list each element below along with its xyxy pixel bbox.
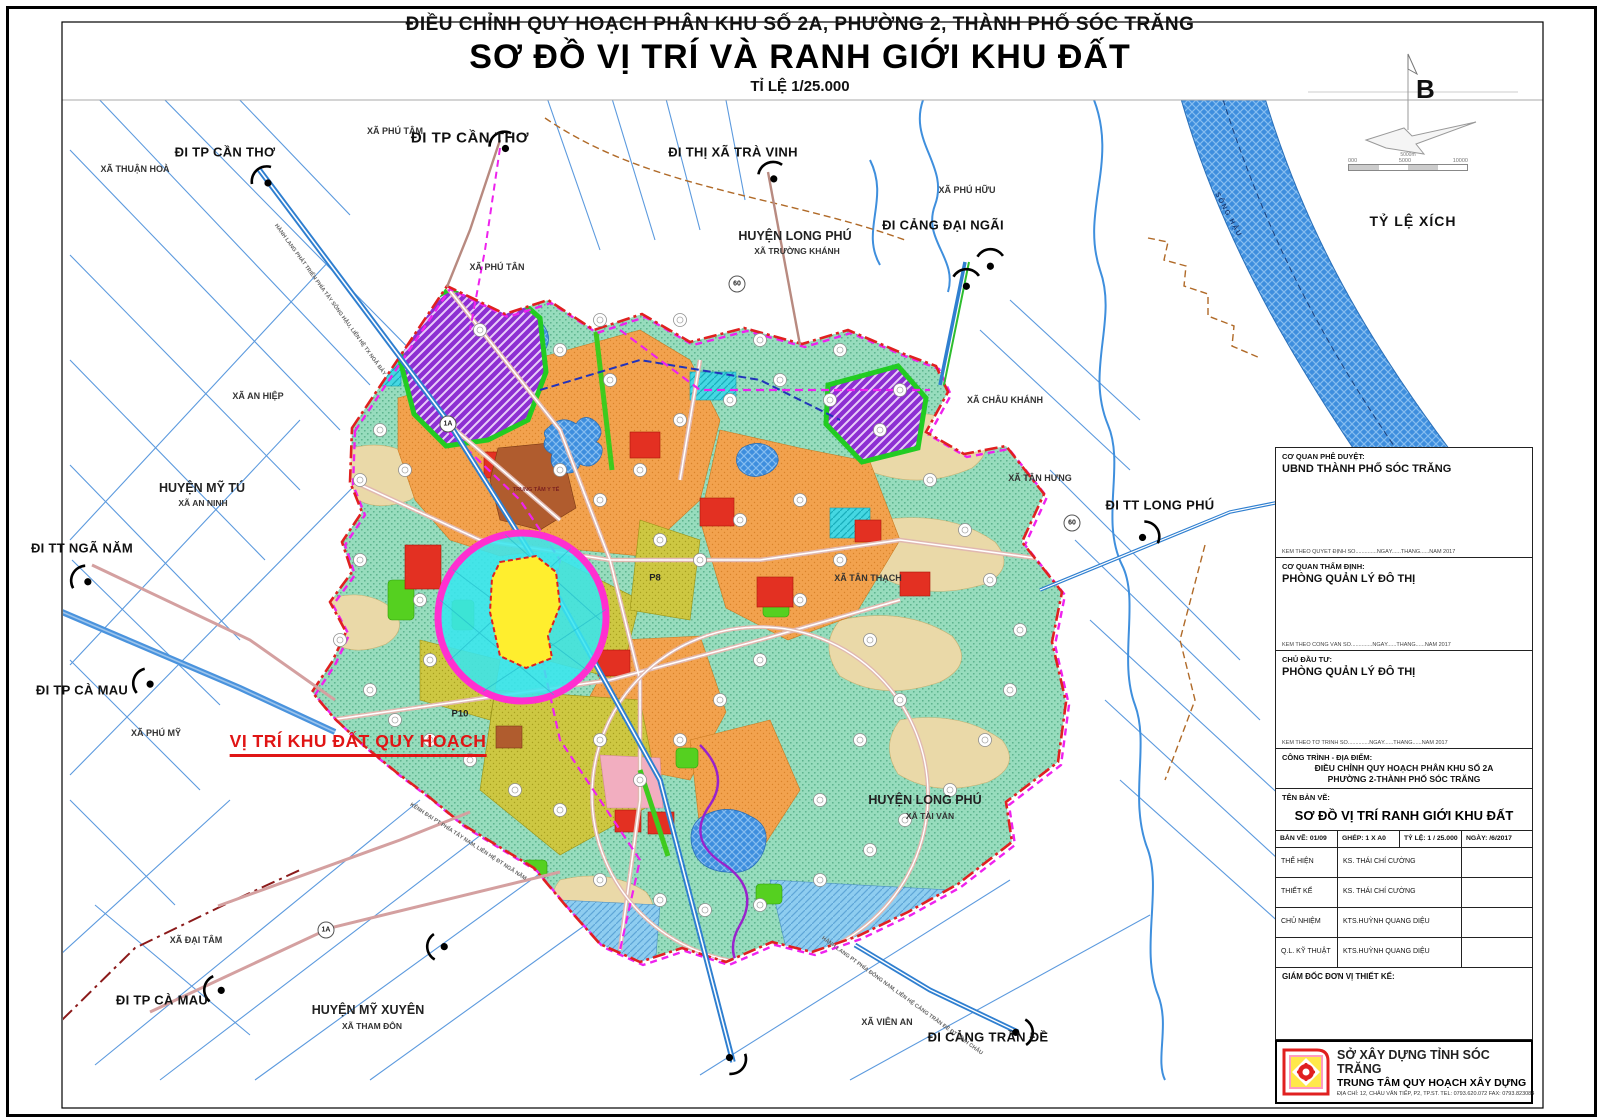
parcel-marker-icon bbox=[959, 524, 972, 537]
parcel-marker-icon bbox=[354, 474, 367, 487]
parcel-marker-icon bbox=[1014, 624, 1027, 637]
parcel-marker-icon bbox=[794, 494, 807, 507]
investor-agency: PHÒNG QUẢN LÝ ĐÔ THỊ bbox=[1282, 666, 1526, 678]
parcel-marker-icon bbox=[554, 464, 567, 477]
parcel-marker-icon bbox=[874, 424, 887, 437]
parcel-marker-icon bbox=[1004, 684, 1017, 697]
parcel-marker-icon bbox=[834, 344, 847, 357]
parcel-marker-icon bbox=[464, 754, 477, 767]
staff-signature-cell bbox=[1462, 908, 1532, 937]
drawing-meta-row: BẢN VẼ: 01/09 GHÉP: 1 X A0 TỶ LỆ: 1 / 25… bbox=[1276, 831, 1532, 848]
parcel-marker-icon bbox=[399, 464, 412, 477]
parcel-marker-icon bbox=[944, 784, 957, 797]
appraisal-agency: PHÒNG QUẢN LÝ ĐÔ THỊ bbox=[1282, 573, 1526, 585]
parcel-marker-icon bbox=[604, 374, 617, 387]
parcel-marker-icon bbox=[899, 814, 912, 827]
project-line2: PHƯỜNG 2-THÀNH PHỐ SÓC TRĂNG bbox=[1282, 774, 1526, 784]
parcel-marker-icon bbox=[374, 424, 387, 437]
parcel-marker-icon bbox=[699, 904, 712, 917]
scale-tick: 10000 bbox=[1453, 158, 1468, 164]
page-title: SƠ ĐỒ VỊ TRÍ VÀ RANH GIỚI KHU ĐẤT bbox=[0, 38, 1600, 77]
scale-tick: 5000 bbox=[1399, 158, 1411, 164]
organization-texts: SỞ XÂY DỰNG TỈNH SÓC TRĂNG TRUNG TÂM QUY… bbox=[1337, 1048, 1534, 1097]
organization-block: SỞ XÂY DỰNG TỈNH SÓC TRĂNG TRUNG TÂM QUY… bbox=[1275, 1040, 1533, 1104]
parcel-marker-icon bbox=[554, 804, 567, 817]
parcel-marker-icon bbox=[754, 334, 767, 347]
parcel-marker-icon bbox=[674, 734, 687, 747]
parcel-marker-icon bbox=[424, 654, 437, 667]
parcel-marker-icon bbox=[924, 474, 937, 487]
parcel-marker-icon bbox=[774, 374, 787, 387]
staff-role: Q.L. KỸ THUẬT bbox=[1276, 938, 1338, 967]
parcel-marker-icon bbox=[634, 774, 647, 787]
title-block: CƠ QUAN PHÊ DUYỆT: UBND THÀNH PHỐ SÓC TR… bbox=[1275, 447, 1533, 1040]
parcel-marker-icon bbox=[364, 684, 377, 697]
staff-row: CHỦ NHIỆM KTS.HUỲNH QUANG DIỆU bbox=[1276, 908, 1532, 938]
parcel-marker-icon bbox=[794, 594, 807, 607]
parcel-marker-icon bbox=[594, 314, 607, 327]
parcel-marker-icon bbox=[824, 394, 837, 407]
parcel-marker-icon bbox=[814, 794, 827, 807]
staff-name: KS. THÁI CHÍ CƯỜNG bbox=[1338, 878, 1462, 907]
staff-role: THỂ HIỆN bbox=[1276, 848, 1338, 877]
scale-caption: TỶ LỆ XÍCH bbox=[1308, 213, 1518, 229]
scale-strip bbox=[1348, 164, 1468, 171]
parcel-marker-icon bbox=[979, 734, 992, 747]
project-label: CÔNG TRÌNH - ĐỊA ĐIỂM: bbox=[1282, 753, 1526, 762]
parcel-marker-icon bbox=[894, 694, 907, 707]
drawing-name-section: TÊN BẢN VẼ: SƠ ĐỒ VỊ TRÍ RANH GIỚI KHU Đ… bbox=[1276, 789, 1532, 831]
staff-row: THIẾT KẾ KS. THÁI CHÍ CƯỜNG bbox=[1276, 878, 1532, 908]
parcel-marker-icon bbox=[894, 384, 907, 397]
sheet-title: ĐIỀU CHỈNH QUY HOẠCH PHÂN KHU SỐ 2A, PHƯ… bbox=[0, 14, 1600, 95]
parcel-marker-icon bbox=[594, 874, 607, 887]
parcel-marker-icon bbox=[389, 714, 402, 727]
parcel-marker-icon bbox=[864, 844, 877, 857]
parcel-marker-icon bbox=[834, 554, 847, 567]
parcel-marker-icon bbox=[814, 874, 827, 887]
meta-sheet-layout: GHÉP: 1 X A0 bbox=[1338, 831, 1400, 847]
scale-bar: 5000m 000500010000 bbox=[1348, 152, 1468, 171]
project-line1: ĐIỀU CHỈNH QUY HOẠCH PHÂN KHU SỐ 2A bbox=[1282, 763, 1526, 773]
investor-section: CHỦ ĐẦU TƯ: PHÒNG QUẢN LÝ ĐÔ THỊ KÈM THE… bbox=[1276, 651, 1532, 749]
parcel-marker-icon bbox=[674, 414, 687, 427]
parcel-marker-icon bbox=[714, 694, 727, 707]
parcel-marker-icon bbox=[354, 554, 367, 567]
appraisal-section: CƠ QUAN THẨM ĐỊNH: PHÒNG QUẢN LÝ ĐÔ THỊ … bbox=[1276, 558, 1532, 651]
staff-row: THỂ HIỆN KS. THÁI CHÍ CƯỜNG bbox=[1276, 848, 1532, 878]
parcel-marker-icon bbox=[424, 734, 437, 747]
meta-date: NGÀY: /6/2017 bbox=[1462, 831, 1532, 847]
map-sheet: ĐIỀU CHỈNH QUY HOẠCH PHÂN KHU SỐ 2A, PHƯ… bbox=[0, 0, 1600, 1120]
parcel-marker-icon bbox=[854, 734, 867, 747]
meta-scale: TỶ LỆ: 1 / 25.000 bbox=[1400, 831, 1462, 847]
staff-signature-cell bbox=[1462, 848, 1532, 877]
organization-center: TRUNG TÂM QUY HOẠCH XÂY DỰNG bbox=[1337, 1077, 1534, 1089]
staff-role: CHỦ NHIỆM bbox=[1276, 908, 1338, 937]
organization-address: ĐỊA CHỈ: 12, CHÂU VĂN TIẾP, P2, TP.ST. T… bbox=[1337, 1091, 1534, 1097]
approval-agency: UBND THÀNH PHỐ SÓC TRĂNG bbox=[1282, 463, 1526, 475]
parcel-marker-icon bbox=[864, 634, 877, 647]
appraisal-label: CƠ QUAN THẨM ĐỊNH: bbox=[1282, 562, 1526, 571]
staff-name: KTS.HUỲNH QUANG DIỆU bbox=[1338, 938, 1462, 967]
investor-label: CHỦ ĐẦU TƯ: bbox=[1282, 655, 1526, 664]
parcel-marker-icon bbox=[594, 734, 607, 747]
approval-note: KÈM THEO QUYẾT ĐỊNH SỐ..............NGÀY… bbox=[1282, 549, 1526, 555]
parcel-marker-icon bbox=[654, 534, 667, 547]
site-plot bbox=[490, 556, 560, 668]
title-line1: ĐIỀU CHỈNH QUY HOẠCH PHÂN KHU SỐ 2A, PHƯ… bbox=[0, 14, 1600, 36]
parcel-marker-icon bbox=[754, 654, 767, 667]
project-section: CÔNG TRÌNH - ĐỊA ĐIỂM: ĐIỀU CHỈNH QUY HO… bbox=[1276, 749, 1532, 789]
parcel-marker-icon bbox=[734, 514, 747, 527]
appraisal-note: KÈM THEO CÔNG VĂN SỐ..............NGÀY..… bbox=[1282, 642, 1526, 648]
staff-signature-cell bbox=[1462, 938, 1532, 967]
staff-row: Q.L. KỸ THUẬT KTS.HUỲNH QUANG DIỆU bbox=[1276, 938, 1532, 968]
parcel-marker-icon bbox=[654, 894, 667, 907]
parcel-marker-icon bbox=[474, 324, 487, 337]
drawing-name-value: SƠ ĐỒ VỊ TRÍ RANH GIỚI KHU ĐẤT bbox=[1282, 808, 1526, 823]
staff-name: KS. THÁI CHÍ CƯỜNG bbox=[1338, 848, 1462, 877]
parcel-marker-icon bbox=[554, 344, 567, 357]
parcel-marker-icon bbox=[594, 494, 607, 507]
drawing-name-label: TÊN BẢN VẼ: bbox=[1282, 793, 1526, 802]
meta-sheet-number: BẢN VẼ: 01/09 bbox=[1276, 831, 1338, 847]
parcel-marker-icon bbox=[724, 394, 737, 407]
parcel-marker-icon bbox=[674, 314, 687, 327]
investor-note: KÈM THEO TỜ TRÌNH SỐ..............NGÀY..… bbox=[1282, 740, 1526, 746]
staff-role: THIẾT KẾ bbox=[1276, 878, 1338, 907]
compass-rose-icon bbox=[1366, 122, 1476, 154]
staff-signature-cell bbox=[1462, 878, 1532, 907]
staff-name: KTS.HUỲNH QUANG DIỆU bbox=[1338, 908, 1462, 937]
parcel-marker-icon bbox=[634, 464, 647, 477]
scale-tick: 000 bbox=[1348, 158, 1357, 164]
parcel-marker-icon bbox=[694, 554, 707, 567]
parcel-marker-icon bbox=[414, 594, 427, 607]
parcel-marker-icon bbox=[334, 634, 347, 647]
parcel-marker-icon bbox=[984, 574, 997, 587]
parcel-marker-icon bbox=[509, 784, 522, 797]
organization-name: SỞ XÂY DỰNG TỈNH SÓC TRĂNG bbox=[1337, 1048, 1534, 1076]
organization-logo-icon bbox=[1281, 1047, 1331, 1097]
title-scale: TỈ LỆ 1/25.000 bbox=[0, 78, 1600, 95]
approval-section: CƠ QUAN PHÊ DUYỆT: UBND THÀNH PHỐ SÓC TR… bbox=[1276, 448, 1532, 558]
approval-label: CƠ QUAN PHÊ DUYỆT: bbox=[1282, 452, 1526, 461]
director-section: GIÁM ĐỐC ĐƠN VỊ THIẾT KẾ: bbox=[1276, 968, 1532, 1040]
parcel-marker-icon bbox=[754, 899, 767, 912]
